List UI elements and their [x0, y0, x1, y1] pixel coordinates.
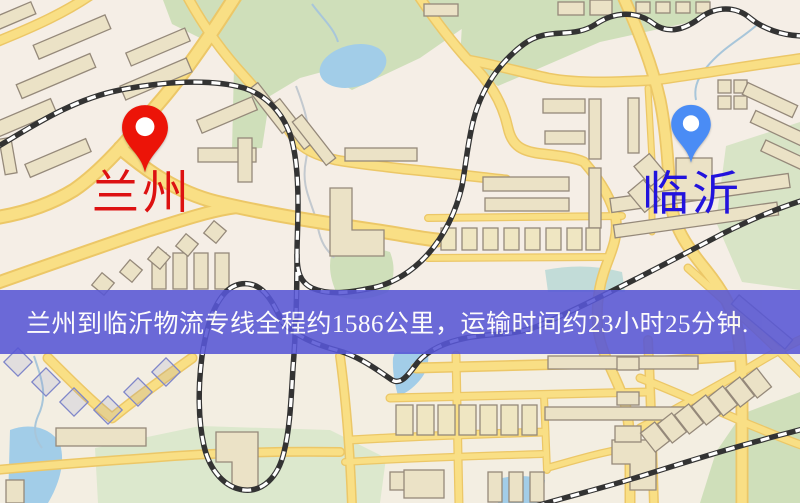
map-canvas[interactable]: 兰州到临沂物流专线全程约1586公里，运输时间约23小时25分钟. 兰州 临沂 — [0, 0, 800, 503]
route-info-banner: 兰州到临沂物流专线全程约1586公里，运输时间约23小时25分钟. — [0, 290, 800, 354]
destination-pin-icon[interactable] — [666, 100, 716, 168]
origin-city-label: 兰州 — [92, 171, 192, 218]
route-info-text: 兰州到临沂物流专线全程约1586公里，运输时间约23小时25分钟. — [0, 304, 749, 340]
origin-pin-icon[interactable] — [116, 100, 174, 178]
destination-city-label: 临沂 — [642, 172, 742, 219]
map-artwork — [0, 0, 800, 503]
